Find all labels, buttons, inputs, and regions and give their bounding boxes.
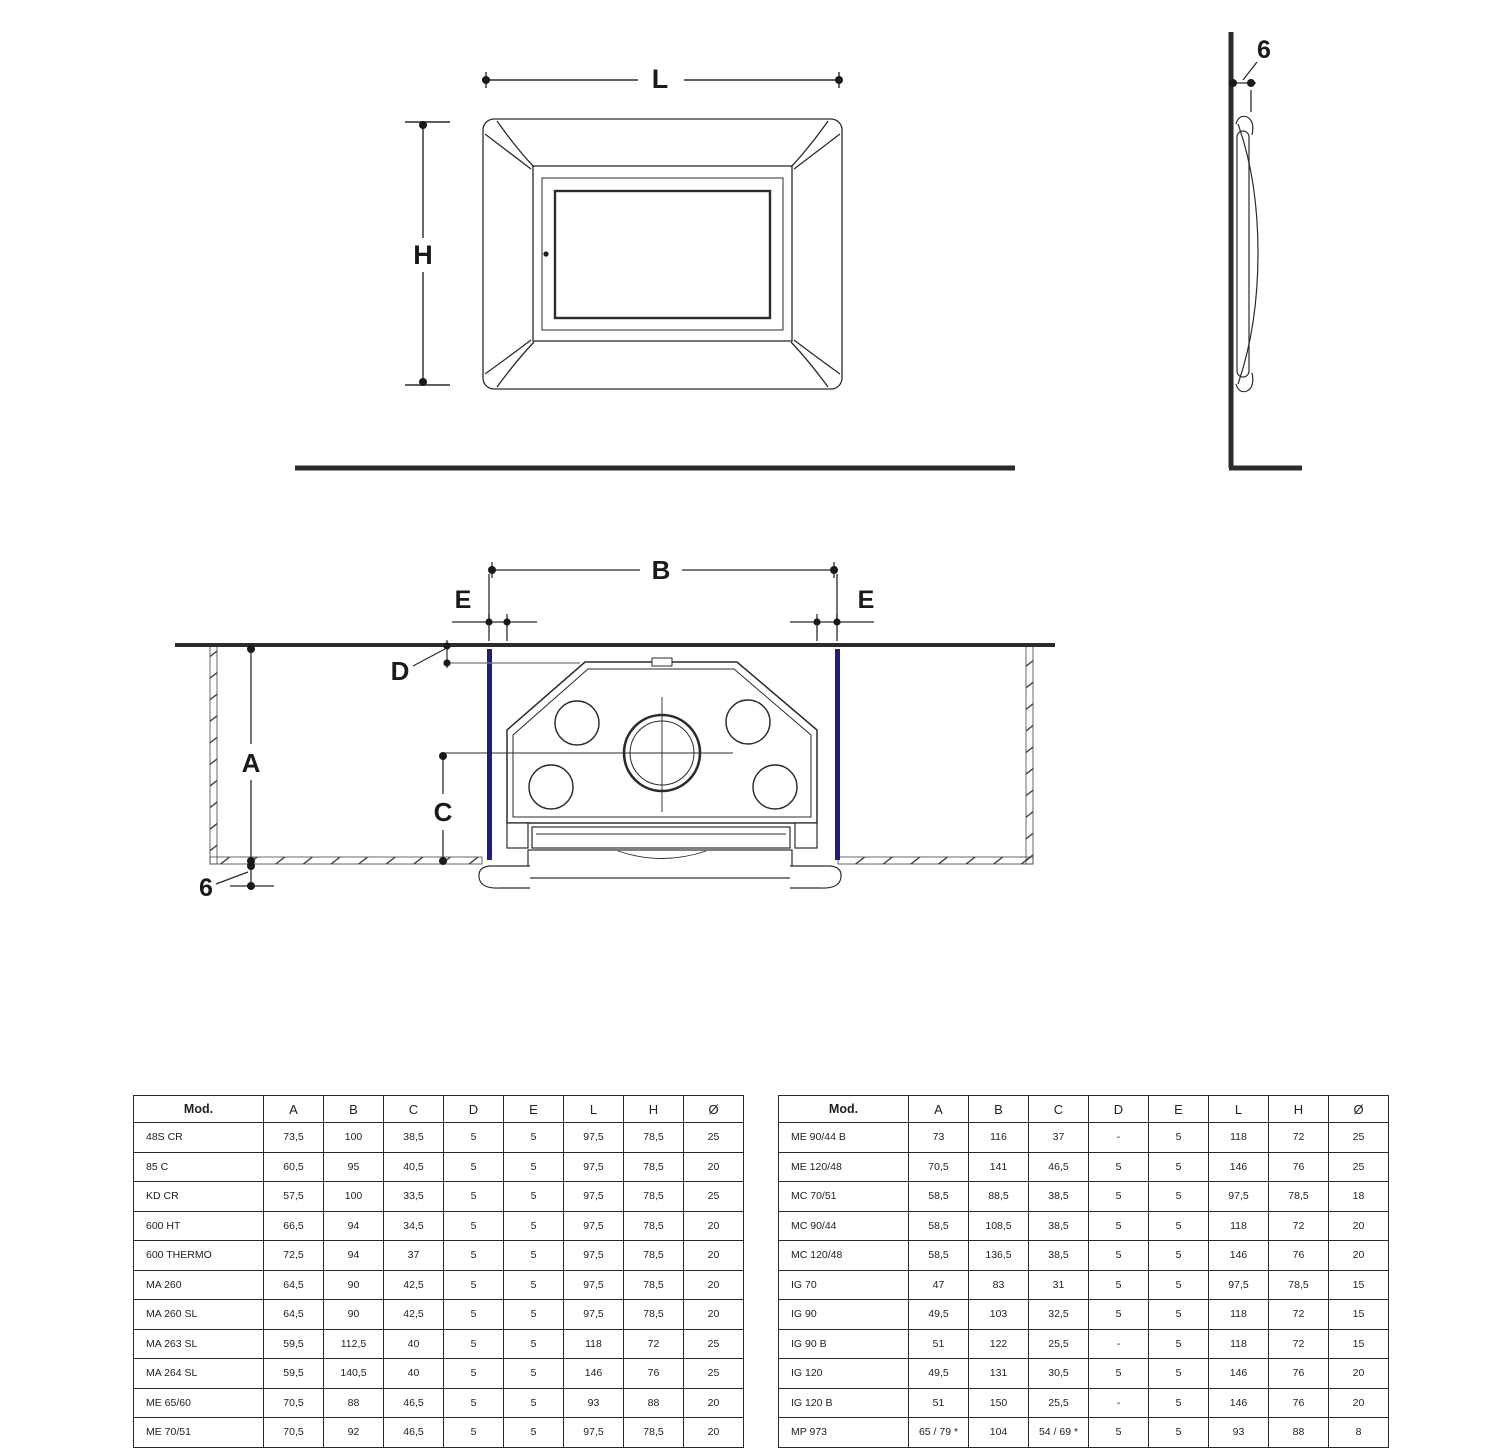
value-cell: 20 <box>684 1418 744 1448</box>
value-cell: 76 <box>1269 1388 1329 1418</box>
column-header: E <box>1149 1096 1209 1123</box>
value-cell: 5 <box>1089 1211 1149 1241</box>
value-cell: 5 <box>504 1241 564 1271</box>
fireplace-frame-front <box>483 119 842 389</box>
value-cell: 5 <box>1149 1329 1209 1359</box>
table-row: 600 HT66,59434,55597,578,520 <box>134 1211 744 1241</box>
value-cell: 34,5 <box>384 1211 444 1241</box>
value-cell: 5 <box>1149 1211 1209 1241</box>
table-row: ME 90/44 B7311637-51187225 <box>779 1123 1389 1153</box>
value-cell: 78,5 <box>624 1418 684 1448</box>
table-row: MC 70/5158,588,538,55597,578,518 <box>779 1182 1389 1212</box>
model-cell: 48S CR <box>134 1123 264 1153</box>
column-header: A <box>909 1096 969 1123</box>
value-cell: 97,5 <box>564 1123 624 1153</box>
column-header-mod: Mod. <box>134 1096 264 1123</box>
table-row: MC 120/4858,5136,538,5551467620 <box>779 1241 1389 1271</box>
model-cell: IG 120 <box>779 1359 909 1389</box>
value-cell: 40,5 <box>384 1152 444 1182</box>
column-header: Ø <box>1329 1096 1389 1123</box>
value-cell: 5 <box>1149 1241 1209 1271</box>
value-cell: 15 <box>1329 1270 1389 1300</box>
value-cell: 66,5 <box>264 1211 324 1241</box>
dim-label-H: H <box>413 240 433 270</box>
value-cell: 5 <box>444 1388 504 1418</box>
value-cell: 8 <box>1329 1418 1389 1448</box>
model-cell: 600 HT <box>134 1211 264 1241</box>
value-cell: 146 <box>1209 1359 1269 1389</box>
value-cell: 20 <box>1329 1241 1389 1271</box>
column-header: Ø <box>684 1096 744 1123</box>
value-cell: 51 <box>909 1388 969 1418</box>
table-row: 600 THERMO72,594375597,578,520 <box>134 1241 744 1271</box>
value-cell: - <box>1089 1388 1149 1418</box>
value-cell: 5 <box>504 1270 564 1300</box>
model-cell: IG 90 B <box>779 1329 909 1359</box>
model-cell: MP 973 <box>779 1418 909 1448</box>
value-cell: 5 <box>504 1359 564 1389</box>
value-cell: 150 <box>969 1388 1029 1418</box>
value-cell: 70,5 <box>909 1152 969 1182</box>
value-cell: 5 <box>444 1211 504 1241</box>
value-cell: 25 <box>684 1123 744 1153</box>
value-cell: 38,5 <box>1029 1211 1089 1241</box>
value-cell: 5 <box>1089 1418 1149 1448</box>
value-cell: 25 <box>1329 1123 1389 1153</box>
model-cell: ME 65/60 <box>134 1388 264 1418</box>
dim-label-E-right: E <box>858 586 875 614</box>
dim-label-6-section: 6 <box>199 874 213 902</box>
value-cell: 118 <box>1209 1123 1269 1153</box>
dimension-B: B <box>488 555 838 624</box>
value-cell: 18 <box>1329 1182 1389 1212</box>
value-cell: 78,5 <box>1269 1270 1329 1300</box>
value-cell: 49,5 <box>909 1300 969 1330</box>
frame-profile-side <box>1236 116 1258 391</box>
value-cell: 78,5 <box>624 1123 684 1153</box>
value-cell: 100 <box>324 1123 384 1153</box>
value-cell: 90 <box>324 1270 384 1300</box>
dimension-6-side: 6 <box>1229 36 1271 112</box>
value-cell: 20 <box>684 1211 744 1241</box>
value-cell: 25,5 <box>1029 1329 1089 1359</box>
value-cell: 112,5 <box>324 1329 384 1359</box>
value-cell: 20 <box>684 1270 744 1300</box>
value-cell: 5 <box>504 1123 564 1153</box>
value-cell: 5 <box>504 1300 564 1330</box>
door-glass <box>555 191 770 318</box>
value-cell: 97,5 <box>564 1211 624 1241</box>
table-row: ME 120/4870,514146,5551467625 <box>779 1152 1389 1182</box>
model-cell: IG 70 <box>779 1270 909 1300</box>
value-cell: 72 <box>1269 1329 1329 1359</box>
dimension-H: H <box>405 121 450 386</box>
value-cell: 5 <box>1149 1300 1209 1330</box>
value-cell: 76 <box>1269 1152 1329 1182</box>
column-header: C <box>384 1096 444 1123</box>
table-row: IG 12049,513130,5551467620 <box>779 1359 1389 1389</box>
value-cell: 136,5 <box>969 1241 1029 1271</box>
value-cell: 90 <box>324 1300 384 1330</box>
value-cell: 42,5 <box>384 1270 444 1300</box>
value-cell: 15 <box>1329 1300 1389 1330</box>
value-cell: 94 <box>324 1241 384 1271</box>
value-cell: 20 <box>1329 1359 1389 1389</box>
table-row: MC 90/4458,5108,538,5551187220 <box>779 1211 1389 1241</box>
dimension-A: A <box>242 645 261 865</box>
column-header: H <box>1269 1096 1329 1123</box>
value-cell: 59,5 <box>264 1329 324 1359</box>
model-cell: IG 90 <box>779 1300 909 1330</box>
column-header-mod: Mod. <box>779 1096 909 1123</box>
value-cell: 46,5 <box>1029 1152 1089 1182</box>
value-cell: 38,5 <box>1029 1241 1089 1271</box>
value-cell: 5 <box>1089 1182 1149 1212</box>
value-cell: 70,5 <box>264 1418 324 1448</box>
value-cell: 30,5 <box>1029 1359 1089 1389</box>
insert-base <box>479 823 841 888</box>
value-cell: 38,5 <box>384 1123 444 1153</box>
value-cell: 49,5 <box>909 1359 969 1389</box>
value-cell: 70,5 <box>264 1388 324 1418</box>
value-cell: 46,5 <box>384 1418 444 1448</box>
value-cell: 54 / 69 * <box>1029 1418 1089 1448</box>
value-cell: 95 <box>324 1152 384 1182</box>
value-cell: 73,5 <box>264 1123 324 1153</box>
value-cell: 140,5 <box>324 1359 384 1389</box>
value-cell: 5 <box>444 1359 504 1389</box>
column-header: E <box>504 1096 564 1123</box>
technical-sheet-page: { "labels": { "front_view": { "width": "… <box>0 0 1500 1427</box>
value-cell: 5 <box>504 1211 564 1241</box>
dimension-C: C <box>434 752 453 865</box>
model-cell: ME 90/44 B <box>779 1123 909 1153</box>
value-cell: 58,5 <box>909 1182 969 1212</box>
value-cell: 5 <box>444 1300 504 1330</box>
value-cell: 20 <box>684 1241 744 1271</box>
value-cell: 5 <box>444 1270 504 1300</box>
frame-moulding-inner <box>542 178 783 330</box>
value-cell: 118 <box>1209 1329 1269 1359</box>
value-cell: 25,5 <box>1029 1388 1089 1418</box>
table-row: ME 65/6070,58846,555938820 <box>134 1388 744 1418</box>
value-cell: 108,5 <box>969 1211 1029 1241</box>
value-cell: 118 <box>1209 1211 1269 1241</box>
front-view: L H <box>295 64 1015 468</box>
value-cell: 78,5 <box>624 1152 684 1182</box>
value-cell: 25 <box>684 1329 744 1359</box>
dimension-L: L <box>482 64 843 94</box>
value-cell: 5 <box>444 1329 504 1359</box>
value-cell: 5 <box>444 1418 504 1448</box>
table-row: MA 26064,59042,55597,578,520 <box>134 1270 744 1300</box>
table-row: 85 C60,59540,55597,578,520 <box>134 1152 744 1182</box>
value-cell: 97,5 <box>1209 1270 1269 1300</box>
value-cell: 104 <box>969 1418 1029 1448</box>
dim-label-L: L <box>652 64 669 94</box>
model-cell: MA 260 SL <box>134 1300 264 1330</box>
value-cell: 5 <box>444 1123 504 1153</box>
value-cell: 97,5 <box>564 1418 624 1448</box>
value-cell: 93 <box>1209 1418 1269 1448</box>
value-cell: 72 <box>1269 1123 1329 1153</box>
value-cell: 5 <box>504 1388 564 1418</box>
table-row: IG 9049,510332,5551187215 <box>779 1300 1389 1330</box>
table-row: KD CR57,510033,55597,578,525 <box>134 1182 744 1212</box>
value-cell: 33,5 <box>384 1182 444 1212</box>
value-cell: 20 <box>1329 1211 1389 1241</box>
dimension-6-section: 6 <box>199 862 274 902</box>
table-row: MP 97365 / 79 *10454 / 69 *5593888 <box>779 1418 1389 1448</box>
value-cell: 58,5 <box>909 1211 969 1241</box>
column-header: D <box>444 1096 504 1123</box>
model-cell: IG 120 B <box>779 1388 909 1418</box>
table-header-row: Mod.ABCDELHØ <box>134 1096 744 1123</box>
model-cell: MC 90/44 <box>779 1211 909 1241</box>
value-cell: 5 <box>444 1241 504 1271</box>
value-cell: 15 <box>1329 1329 1389 1359</box>
value-cell: 78,5 <box>624 1300 684 1330</box>
column-header: A <box>264 1096 324 1123</box>
value-cell: 78,5 <box>624 1182 684 1212</box>
value-cell: 100 <box>324 1182 384 1212</box>
table-row: MA 263 SL59,5112,540551187225 <box>134 1329 744 1359</box>
value-cell: 94 <box>324 1211 384 1241</box>
value-cell: 31 <box>1029 1270 1089 1300</box>
value-cell: 25 <box>684 1182 744 1212</box>
value-cell: 64,5 <box>264 1270 324 1300</box>
column-header: C <box>1029 1096 1089 1123</box>
value-cell: 59,5 <box>264 1359 324 1389</box>
value-cell: 122 <box>969 1329 1029 1359</box>
dim-label-6-side: 6 <box>1257 36 1271 64</box>
value-cell: 83 <box>969 1270 1029 1300</box>
value-cell: 93 <box>564 1388 624 1418</box>
dim-label-B: B <box>652 555 671 585</box>
value-cell: 60,5 <box>264 1152 324 1182</box>
value-cell: 78,5 <box>624 1241 684 1271</box>
table-row: MA 260 SL64,59042,55597,578,520 <box>134 1300 744 1330</box>
value-cell: 78,5 <box>624 1270 684 1300</box>
value-cell: 20 <box>684 1300 744 1330</box>
table-row: ME 70/5170,59246,55597,578,520 <box>134 1418 744 1448</box>
column-header: L <box>1209 1096 1269 1123</box>
value-cell: 76 <box>1269 1359 1329 1389</box>
model-cell: KD CR <box>134 1182 264 1212</box>
value-cell: 5 <box>444 1152 504 1182</box>
value-cell: 40 <box>384 1359 444 1389</box>
value-cell: 72 <box>1269 1300 1329 1330</box>
value-cell: 58,5 <box>909 1241 969 1271</box>
side-view: 6 <box>1229 32 1302 468</box>
model-cell: MA 264 SL <box>134 1359 264 1389</box>
dimension-table-left: Mod.ABCDELHØ 48S CR73,510038,55597,578,5… <box>133 1095 744 1448</box>
frame-moulding-outer <box>533 166 792 341</box>
value-cell: 37 <box>384 1241 444 1271</box>
value-cell: 88,5 <box>969 1182 1029 1212</box>
value-cell: 5 <box>1149 1388 1209 1418</box>
value-cell: 76 <box>624 1359 684 1389</box>
value-cell: 25 <box>1329 1152 1389 1182</box>
value-cell: 5 <box>1149 1359 1209 1389</box>
value-cell: 20 <box>684 1152 744 1182</box>
insert-body <box>443 658 817 823</box>
value-cell: 131 <box>969 1359 1029 1389</box>
column-header: D <box>1089 1096 1149 1123</box>
value-cell: 78,5 <box>624 1211 684 1241</box>
value-cell: 47 <box>909 1270 969 1300</box>
model-cell: MC 70/51 <box>779 1182 909 1212</box>
value-cell: 5 <box>504 1182 564 1212</box>
table-row: 48S CR73,510038,55597,578,525 <box>134 1123 744 1153</box>
value-cell: 88 <box>1269 1418 1329 1448</box>
value-cell: 51 <box>909 1329 969 1359</box>
value-cell: 116 <box>969 1123 1029 1153</box>
value-cell: 42,5 <box>384 1300 444 1330</box>
value-cell: 92 <box>324 1418 384 1448</box>
value-cell: 38,5 <box>1029 1182 1089 1212</box>
technical-drawing: L H <box>0 0 1500 960</box>
value-cell: 5 <box>504 1329 564 1359</box>
model-cell: MA 263 SL <box>134 1329 264 1359</box>
dim-label-E-left: E <box>455 586 472 614</box>
value-cell: 78,5 <box>1269 1182 1329 1212</box>
value-cell: 97,5 <box>564 1270 624 1300</box>
value-cell: 103 <box>969 1300 1029 1330</box>
value-cell: 5 <box>1089 1359 1149 1389</box>
value-cell: 118 <box>564 1329 624 1359</box>
value-cell: 37 <box>1029 1123 1089 1153</box>
column-header: L <box>564 1096 624 1123</box>
value-cell: 97,5 <box>564 1241 624 1271</box>
value-cell: 146 <box>1209 1152 1269 1182</box>
value-cell: 146 <box>564 1359 624 1389</box>
value-cell: 5 <box>1149 1152 1209 1182</box>
column-header: B <box>324 1096 384 1123</box>
column-header: H <box>624 1096 684 1123</box>
model-cell: MC 120/48 <box>779 1241 909 1271</box>
value-cell: 5 <box>1149 1123 1209 1153</box>
value-cell: 64,5 <box>264 1300 324 1330</box>
value-cell: 32,5 <box>1029 1300 1089 1330</box>
value-cell: 5 <box>1089 1300 1149 1330</box>
model-cell: 85 C <box>134 1152 264 1182</box>
value-cell: 40 <box>384 1329 444 1359</box>
table-header-row: Mod.ABCDELHØ <box>779 1096 1389 1123</box>
value-cell: 46,5 <box>384 1388 444 1418</box>
value-cell: 88 <box>624 1388 684 1418</box>
dimension-table-right: Mod.ABCDELHØ ME 90/44 B7311637-51187225M… <box>778 1095 1389 1448</box>
value-cell: 20 <box>684 1388 744 1418</box>
model-cell: 600 THERMO <box>134 1241 264 1271</box>
value-cell: 5 <box>1149 1270 1209 1300</box>
dim-label-D: D <box>391 656 410 686</box>
value-cell: 5 <box>1089 1152 1149 1182</box>
value-cell: 72 <box>624 1329 684 1359</box>
section-view: B E E D <box>175 555 1055 902</box>
value-cell: 97,5 <box>564 1152 624 1182</box>
value-cell: 97,5 <box>564 1300 624 1330</box>
value-cell: 72 <box>1269 1211 1329 1241</box>
value-cell: 5 <box>1149 1182 1209 1212</box>
value-cell: 5 <box>444 1182 504 1212</box>
table-row: MA 264 SL59,5140,540551467625 <box>134 1359 744 1389</box>
value-cell: 88 <box>324 1388 384 1418</box>
value-cell: 5 <box>504 1152 564 1182</box>
value-cell: 97,5 <box>564 1182 624 1212</box>
value-cell: 25 <box>684 1359 744 1389</box>
value-cell: 73 <box>909 1123 969 1153</box>
value-cell: 141 <box>969 1152 1029 1182</box>
dimension-E-right: E <box>790 586 874 641</box>
value-cell: 5 <box>1149 1418 1209 1448</box>
value-cell: 76 <box>1269 1241 1329 1271</box>
value-cell: 118 <box>1209 1300 1269 1330</box>
dim-label-C: C <box>434 797 453 827</box>
value-cell: 65 / 79 * <box>909 1418 969 1448</box>
value-cell: 5 <box>1089 1270 1149 1300</box>
value-cell: 5 <box>504 1418 564 1448</box>
table-row: IG 704783315597,578,515 <box>779 1270 1389 1300</box>
column-header: B <box>969 1096 1029 1123</box>
model-cell: MA 260 <box>134 1270 264 1300</box>
value-cell: 72,5 <box>264 1241 324 1271</box>
dim-label-A: A <box>242 748 261 778</box>
dimension-E-left: E <box>452 586 537 641</box>
door-hinge-dot <box>543 251 548 256</box>
table-row: IG 120 B5115025,5-51467620 <box>779 1388 1389 1418</box>
model-cell: ME 70/51 <box>134 1418 264 1448</box>
model-cell: ME 120/48 <box>779 1152 909 1182</box>
value-cell: - <box>1089 1123 1149 1153</box>
table-row: IG 90 B5112225,5-51187215 <box>779 1329 1389 1359</box>
value-cell: 146 <box>1209 1241 1269 1271</box>
value-cell: 5 <box>1089 1241 1149 1271</box>
value-cell: 57,5 <box>264 1182 324 1212</box>
value-cell: - <box>1089 1329 1149 1359</box>
value-cell: 20 <box>1329 1388 1389 1418</box>
value-cell: 97,5 <box>1209 1182 1269 1212</box>
value-cell: 146 <box>1209 1388 1269 1418</box>
